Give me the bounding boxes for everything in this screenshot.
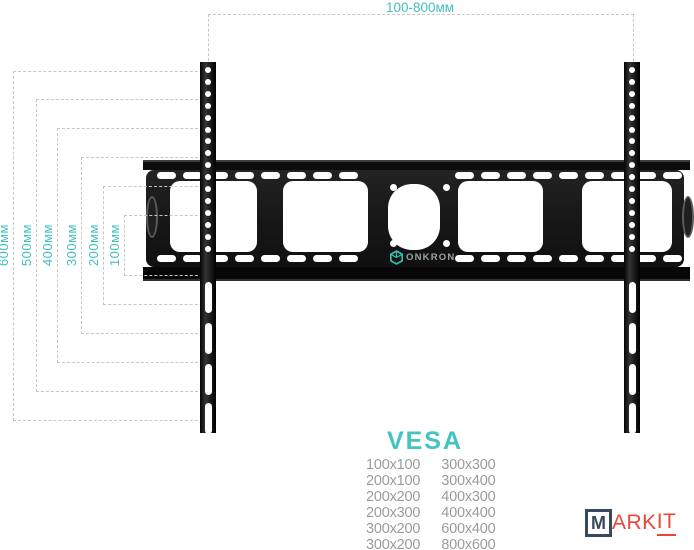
product-dimension-diagram: 100-800мм 600мм500мм400мм300мм200мм100мм… <box>0 0 694 550</box>
rail-hole <box>629 115 635 121</box>
plate-slot <box>261 255 280 262</box>
rail-hole <box>205 222 211 228</box>
vesa-size: 800x600 <box>441 537 495 550</box>
plate-slot <box>507 172 526 179</box>
rail-hole <box>629 127 635 133</box>
plate-slot <box>585 255 604 262</box>
rail-hole <box>629 222 635 228</box>
plate-slot <box>533 172 552 179</box>
vesa-size: 600x400 <box>441 521 495 537</box>
plate-slot <box>313 172 332 179</box>
plate-slot <box>663 255 682 262</box>
vesa-rail <box>624 62 640 433</box>
onkron-wordmark: ONKRON <box>406 252 455 263</box>
plate-slot <box>287 255 306 262</box>
vesa-rail <box>200 62 216 433</box>
rail-hole <box>205 138 211 144</box>
plate-slot <box>455 255 474 262</box>
vesa-size: 300x400 <box>441 473 495 489</box>
rail-slot <box>205 403 212 434</box>
cube-outline-icon <box>390 250 403 265</box>
plate-slot <box>235 172 254 179</box>
dimension-label: 300мм <box>64 224 79 266</box>
rail-hole <box>205 186 211 192</box>
rail-hole <box>205 246 211 252</box>
rail-hole <box>205 79 211 85</box>
vesa-title: VESA <box>360 427 490 456</box>
rail-hole <box>205 210 211 216</box>
vesa-size: 400x400 <box>441 505 495 521</box>
rail-slot <box>629 282 636 313</box>
plate-slot <box>261 172 280 179</box>
rail-slot <box>205 364 212 395</box>
top-dimension-label: 100-800мм <box>208 0 632 15</box>
rail-hole <box>629 246 635 252</box>
markit-middle-letters: ARK <box>612 511 657 535</box>
plate-slot <box>339 255 358 262</box>
rail-hole <box>205 174 211 180</box>
vesa-size-table: 100x100300x300200x100300x400200x200400x3… <box>366 457 496 550</box>
rail-slot <box>629 403 636 434</box>
vesa-size: 400x300 <box>441 489 495 505</box>
rail-hole <box>205 162 211 168</box>
rail-hole <box>205 150 211 156</box>
dimension-label: 600мм <box>0 224 11 266</box>
vesa-size: 200x300 <box>366 505 420 521</box>
plate-slot <box>559 255 578 262</box>
right-end-cap <box>682 196 694 238</box>
plate-slot <box>533 255 552 262</box>
plate-slot <box>235 255 254 262</box>
plate-slot <box>313 255 332 262</box>
rail-hole <box>629 103 635 109</box>
rail-hole <box>205 115 211 121</box>
dimension-bracket <box>124 215 208 276</box>
rail-hole <box>629 138 635 144</box>
markit-underlined-letters: IT <box>657 510 677 536</box>
rail-hole <box>629 210 635 216</box>
plate-slot <box>481 172 500 179</box>
dimension-label: 100мм <box>107 224 122 266</box>
rail-hole <box>629 174 635 180</box>
plate-slot <box>481 255 500 262</box>
rail-slot <box>629 323 636 354</box>
rail-slot <box>629 364 636 395</box>
plate-bottom-edge <box>143 267 690 281</box>
markit-letter-box: M <box>585 509 612 537</box>
rail-hole <box>205 198 211 204</box>
rail-hole <box>629 79 635 85</box>
dimension-label: 400мм <box>40 224 55 266</box>
rail-hole <box>629 234 635 240</box>
rail-hole <box>629 186 635 192</box>
screw-hole <box>390 184 397 191</box>
plate-slot <box>339 172 358 179</box>
plate-slot <box>455 172 474 179</box>
rail-hole <box>629 91 635 97</box>
vesa-size: 200x200 <box>366 489 420 505</box>
plate-slot <box>585 172 604 179</box>
screw-hole <box>443 184 450 191</box>
plate-top-edge <box>143 160 690 170</box>
rail-hole <box>629 150 635 156</box>
dimension-label: 500мм <box>19 224 34 266</box>
plate-slot <box>559 172 578 179</box>
vesa-size: 100x100 <box>366 457 420 473</box>
markit-watermark: M ARK IT <box>585 509 676 537</box>
vesa-size: 300x200 <box>366 521 420 537</box>
onkron-logo: ONKRON <box>390 250 455 265</box>
screw-hole <box>390 240 397 247</box>
screw-hole <box>443 240 450 247</box>
plate-slot <box>663 172 682 179</box>
rail-hole <box>629 198 635 204</box>
rail-hole <box>205 91 211 97</box>
dimension-label: 200мм <box>86 224 101 266</box>
plate-slot <box>507 255 526 262</box>
plate-slot <box>287 172 306 179</box>
rail-hole <box>629 162 635 168</box>
vesa-size: 200x100 <box>366 473 420 489</box>
rail-hole <box>205 127 211 133</box>
rail-hole <box>205 67 211 73</box>
vesa-size: 300x300 <box>441 457 495 473</box>
rail-hole <box>205 103 211 109</box>
vesa-size: 300x200 <box>366 537 420 550</box>
rail-slot <box>205 282 212 313</box>
rail-hole <box>629 67 635 73</box>
rail-slot <box>205 323 212 354</box>
plate-window <box>458 181 543 252</box>
rail-hole <box>205 234 211 240</box>
top-dimension-bracket <box>208 14 634 61</box>
plate-window <box>283 181 368 252</box>
